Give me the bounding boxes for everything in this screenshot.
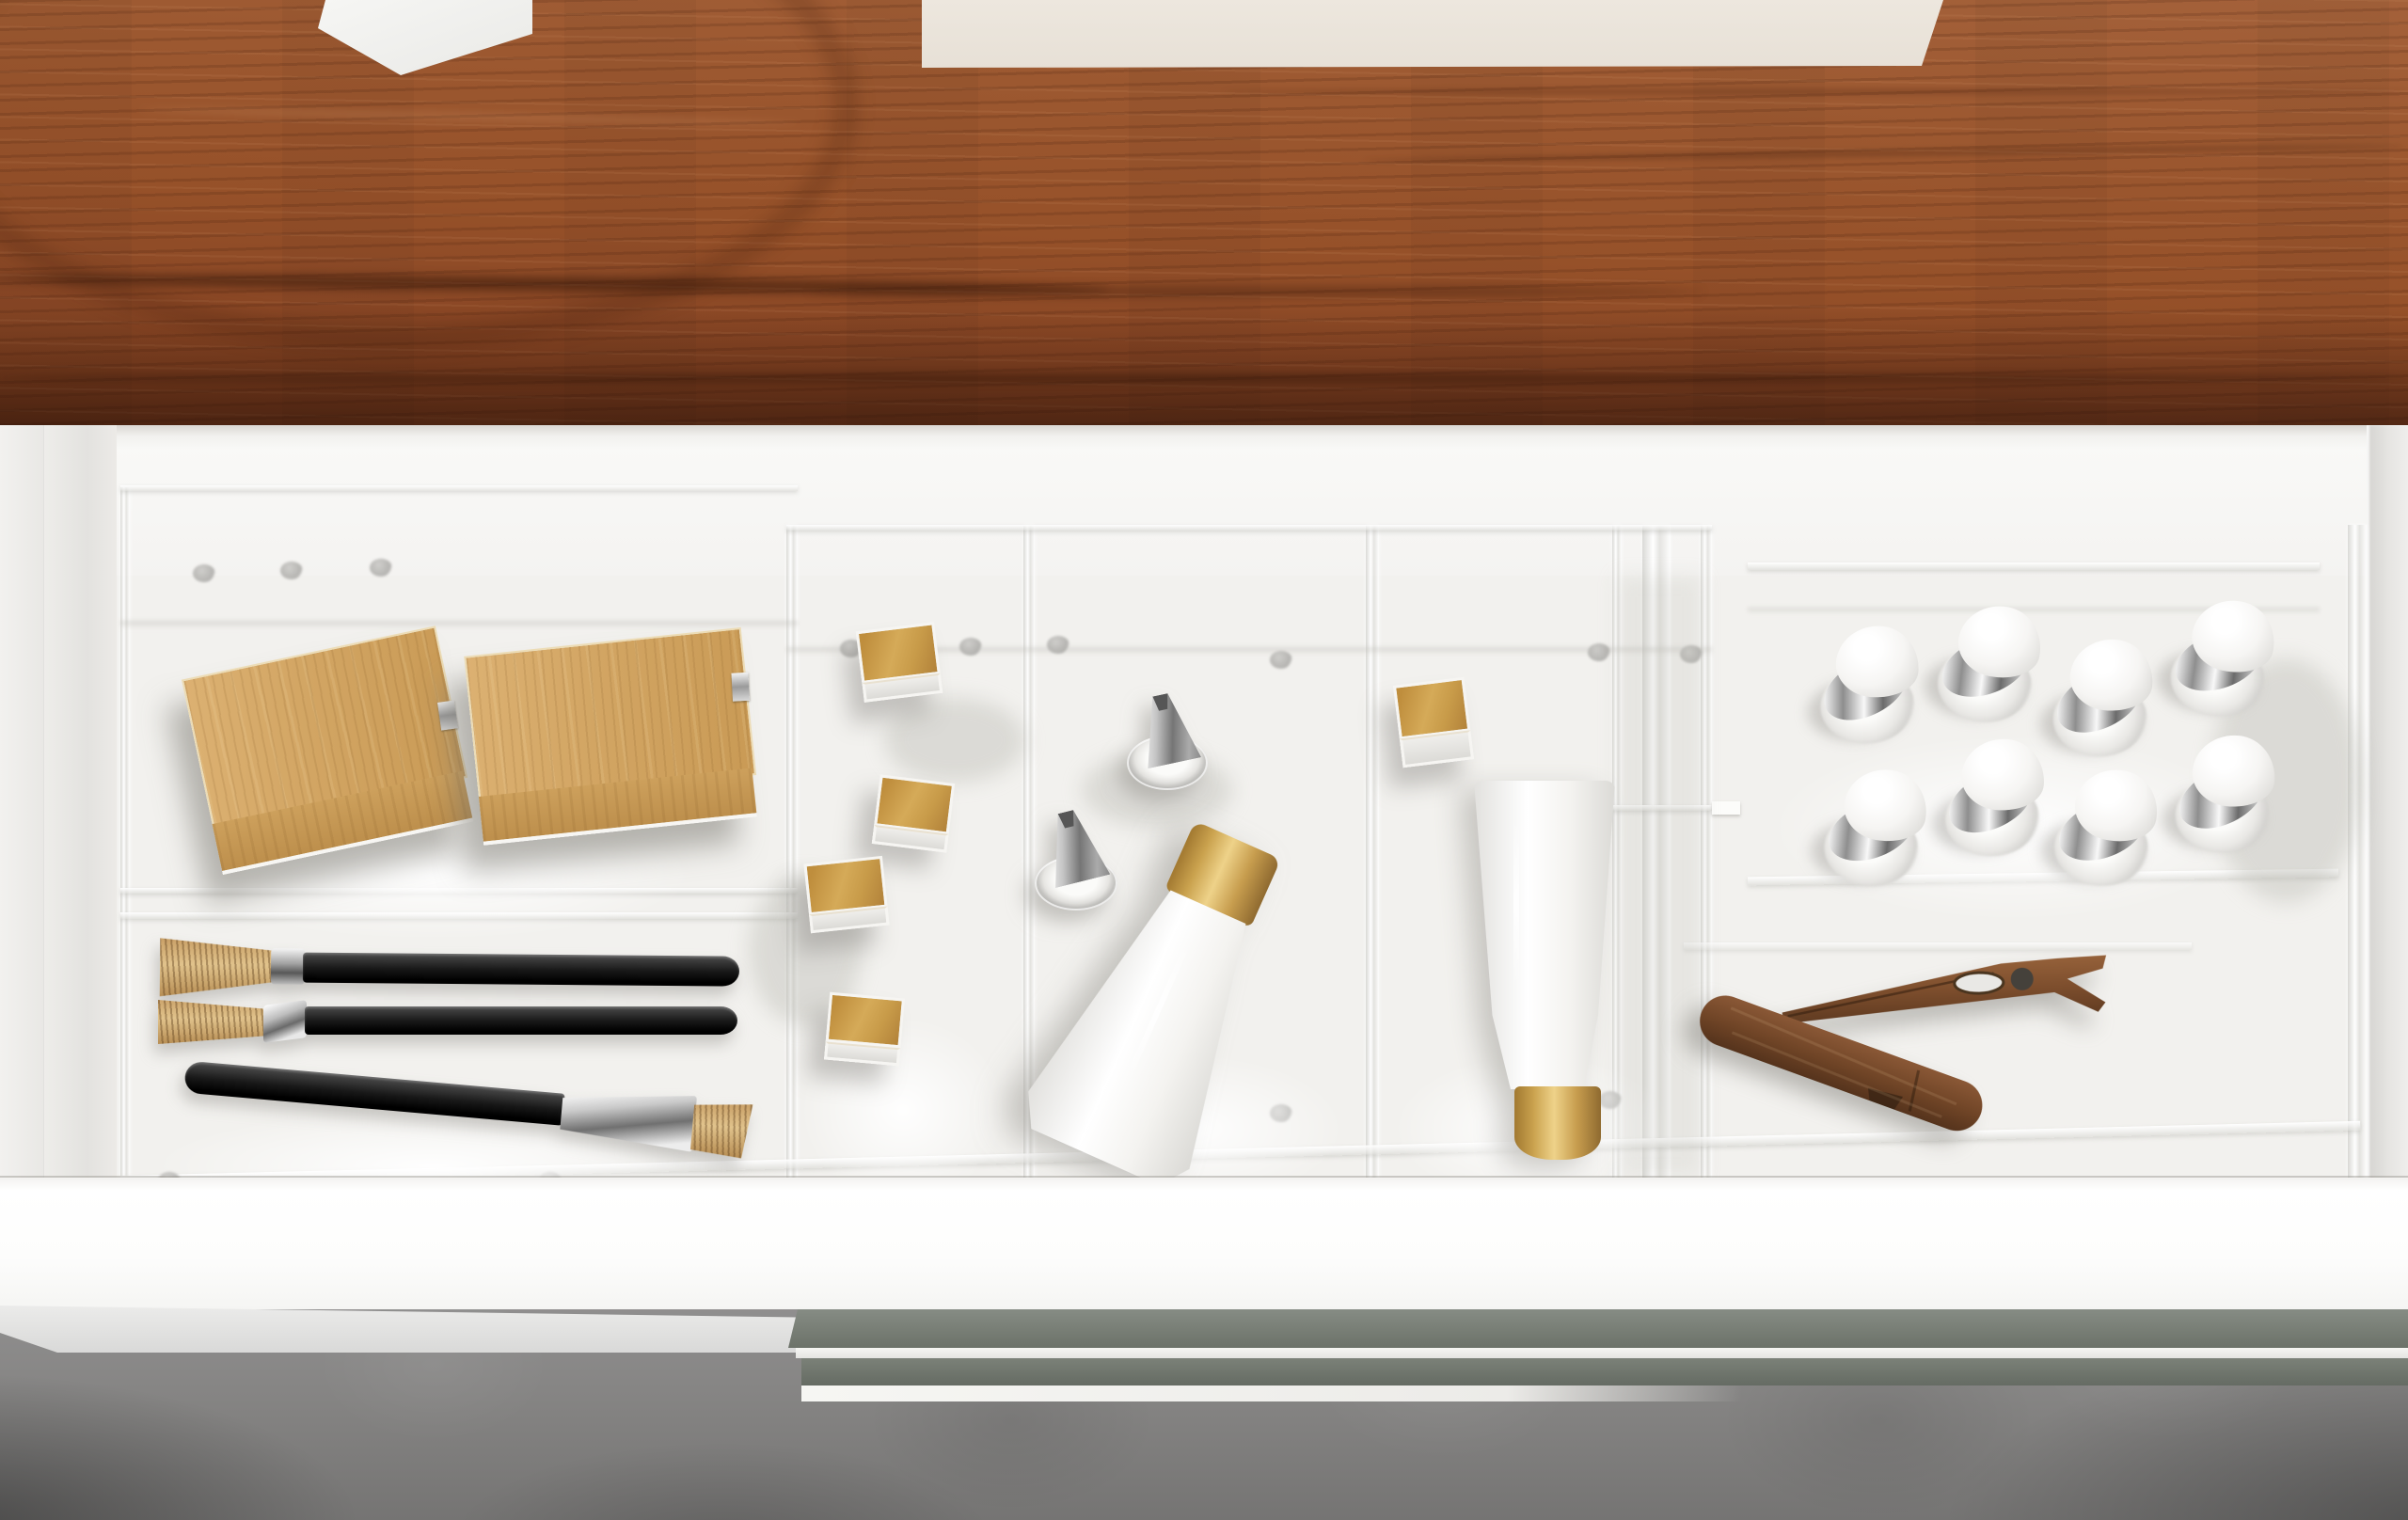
- white-cap-bottle: [2162, 596, 2288, 726]
- acrylic-wall: [1366, 525, 1379, 1183]
- tube-highlight: [1513, 818, 1519, 988]
- gold-lipstick: [824, 992, 905, 1067]
- wood-grain-streak: [809, 287, 1703, 296]
- silver-cone-jar: [1033, 811, 1121, 910]
- brush-handle: [305, 1006, 737, 1035]
- standing-cosmetic-tube: [1474, 781, 1615, 1091]
- cabinet-base-edge: [801, 1385, 1742, 1401]
- brush-handle: [303, 953, 739, 987]
- wood-countertop: [0, 0, 2408, 432]
- brush-ferrule: [271, 948, 305, 984]
- drawer-interior: [0, 425, 2408, 1189]
- white-cap-bottle: [1930, 603, 2053, 731]
- drawer-handle-rail-lower: [801, 1358, 2408, 1385]
- drawer-back-wall: [0, 425, 2408, 576]
- wood-grain-streak: [0, 374, 2408, 383]
- tube-body: [1474, 781, 1615, 1089]
- brush-bristles: [690, 1100, 753, 1159]
- foot-dot: [1047, 636, 1069, 654]
- metal-clasp: [437, 700, 458, 730]
- drawer-handle-rail: [788, 1309, 2408, 1348]
- white-cap-bottle: [1817, 768, 1938, 894]
- acrylic-edge: [120, 485, 798, 491]
- foot-dot: [370, 559, 392, 577]
- acrylic-edge: [1684, 942, 2192, 950]
- white-cap-bottle: [2047, 767, 2170, 895]
- wood-grain-streak: [1364, 143, 2408, 163]
- brush-bristles: [160, 938, 274, 997]
- makeup-brush: [158, 997, 741, 1050]
- brush-ferrule: [263, 1000, 307, 1043]
- drawer-left-wall: [0, 425, 43, 1189]
- drawer-right-wall: [2367, 425, 2408, 1189]
- acrylic-tray-back-edge: [1748, 562, 2320, 570]
- acrylic-notch: [1712, 801, 1740, 815]
- foot-dot: [1588, 643, 1610, 661]
- gold-cap: [826, 992, 905, 1049]
- brush-ferrule: [559, 1085, 697, 1152]
- soft-shadow: [884, 698, 1025, 783]
- scene-open-drawer: [0, 0, 2408, 1520]
- white-cap-bottle: [1810, 623, 1935, 752]
- foot-dot: [280, 562, 303, 579]
- gold-lipstick: [872, 774, 955, 852]
- makeup-brush: [160, 936, 744, 1003]
- brush-bristles: [158, 997, 269, 1044]
- foot-dot: [959, 638, 982, 656]
- white-cap-bottle: [2167, 734, 2288, 860]
- drawer-left-wall-inner: [43, 425, 117, 1189]
- metal-clasp: [732, 673, 751, 702]
- white-cap-bottle: [1936, 736, 2059, 864]
- gold-cap: [1393, 677, 1471, 740]
- foot-dot: [193, 564, 215, 582]
- gold-lipstick: [1393, 677, 1474, 768]
- silver-cone-jar: [1125, 694, 1212, 790]
- gold-lipstick: [856, 622, 943, 703]
- wooden-clip-graphic: [1775, 947, 2115, 1031]
- acrylic-wall: [2348, 525, 2367, 1183]
- wooden-clip: [1775, 947, 2115, 1031]
- drawer-handle-stripe: [796, 1348, 2408, 1358]
- soft-shadow: [1616, 576, 1703, 1178]
- tube-gold-cap: [1514, 1086, 1601, 1160]
- gold-cap: [803, 856, 887, 915]
- foot-dot: [1270, 651, 1292, 669]
- acrylic-edge: [786, 525, 1712, 530]
- wood-grain-streak: [1223, 89, 2408, 94]
- wooden-box: [464, 627, 757, 845]
- brush-handle: [183, 1061, 564, 1126]
- gold-lipstick: [803, 856, 889, 933]
- acrylic-wall: [120, 487, 130, 1185]
- white-cap-bottle: [2045, 638, 2165, 764]
- wall-strip: [922, 0, 1947, 70]
- drawer-front-panel: [0, 1178, 2408, 1309]
- acrylic-floor-junction: [120, 621, 798, 628]
